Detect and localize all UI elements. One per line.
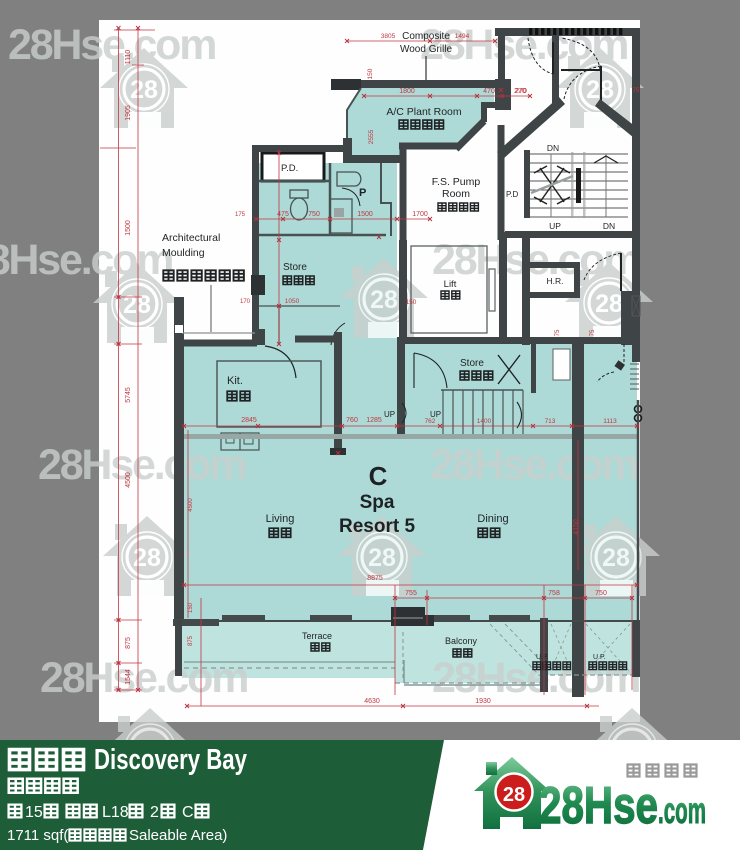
svg-text:750: 750: [308, 211, 320, 218]
svg-text:875: 875: [188, 635, 194, 646]
svg-text:Saleable Area): Saleable Area): [129, 827, 227, 844]
svg-text:760: 760: [346, 417, 358, 424]
svg-text:P.D: P.D: [506, 190, 519, 199]
svg-text:1800: 1800: [399, 88, 415, 95]
svg-text:Store: Store: [460, 358, 484, 369]
svg-text:28Hse.com: 28Hse.com: [40, 654, 247, 702]
svg-text:UP: UP: [549, 221, 561, 231]
svg-text:Wood Grille: Wood Grille: [400, 44, 452, 55]
svg-text:P.D.: P.D.: [281, 163, 298, 174]
svg-text:C: C: [369, 461, 388, 491]
svg-text:28Hse: 28Hse: [539, 777, 658, 835]
svg-text:75: 75: [633, 88, 640, 94]
svg-text:Spa: Spa: [360, 492, 395, 513]
svg-text:875: 875: [125, 637, 132, 649]
svg-text:150: 150: [188, 602, 194, 613]
svg-text:H.R.: H.R.: [547, 276, 564, 286]
svg-text:Balcony: Balcony: [445, 636, 478, 646]
svg-text:75: 75: [590, 329, 596, 336]
svg-text:2: 2: [150, 804, 159, 821]
svg-text:2845: 2845: [241, 417, 257, 424]
svg-text:762: 762: [425, 418, 436, 425]
svg-text:F.S. Pump: F.S. Pump: [432, 176, 481, 188]
svg-text:28Hse.com: 28Hse.com: [432, 654, 639, 702]
svg-text:1494: 1494: [455, 33, 470, 40]
svg-text:.com: .com: [658, 790, 706, 831]
svg-text:75: 75: [555, 329, 561, 336]
svg-text:1500: 1500: [125, 220, 132, 236]
svg-text:U.P.: U.P.: [593, 654, 606, 661]
svg-text:A/C Plant Room: A/C Plant Room: [386, 106, 462, 118]
svg-text:4150: 4150: [573, 519, 580, 535]
svg-text:DN: DN: [547, 143, 559, 153]
svg-text:1400: 1400: [477, 418, 492, 425]
svg-text:Discovery Bay: Discovery Bay: [94, 744, 247, 776]
svg-text:1050: 1050: [285, 298, 300, 305]
svg-text:P: P: [359, 187, 366, 199]
svg-text:755: 755: [405, 590, 417, 597]
svg-text:4500: 4500: [188, 498, 194, 512]
svg-text:1905: 1905: [125, 105, 132, 121]
svg-text:L18: L18: [102, 804, 129, 821]
svg-text:Room: Room: [442, 188, 470, 200]
svg-text:1711 sqf(: 1711 sqf(: [7, 827, 68, 844]
svg-text:1700: 1700: [412, 211, 428, 218]
svg-text:Living: Living: [266, 513, 295, 525]
svg-text:150: 150: [406, 299, 417, 306]
svg-text:750: 750: [595, 590, 607, 597]
svg-text:5745: 5745: [125, 387, 132, 403]
svg-text:Composite: Composite: [402, 31, 450, 42]
svg-text:1930: 1930: [475, 698, 491, 705]
svg-text:Terrace: Terrace: [302, 631, 332, 641]
svg-text:4500: 4500: [125, 472, 132, 488]
svg-text:15: 15: [25, 804, 43, 821]
svg-text:1544: 1544: [125, 669, 132, 685]
svg-text:Moulding: Moulding: [162, 247, 205, 259]
svg-text:475: 475: [277, 211, 289, 218]
svg-text:713: 713: [545, 418, 556, 425]
svg-text:170: 170: [240, 299, 251, 305]
svg-text:Dining: Dining: [477, 513, 508, 525]
svg-text:175: 175: [235, 212, 246, 218]
svg-text:C: C: [182, 804, 194, 821]
svg-text:U.P.: U.P.: [536, 654, 549, 661]
svg-text:28: 28: [503, 784, 525, 806]
svg-text:28Hse.com: 28Hse.com: [38, 441, 245, 489]
svg-text:150: 150: [367, 68, 374, 79]
svg-text:28Hse.com: 28Hse.com: [8, 21, 215, 69]
svg-text:270: 270: [514, 88, 526, 95]
svg-text:1110: 1110: [125, 50, 132, 65]
svg-text:Store: Store: [283, 262, 307, 273]
svg-text:8875: 8875: [367, 575, 383, 582]
svg-text:470: 470: [483, 88, 495, 95]
svg-text:4630: 4630: [364, 698, 380, 705]
svg-text:28Hse.com: 28Hse.com: [430, 441, 637, 489]
svg-text:Kit.: Kit.: [227, 375, 243, 387]
svg-text:1500: 1500: [357, 211, 373, 218]
svg-text:758: 758: [548, 590, 560, 597]
svg-text:Lift: Lift: [444, 279, 457, 290]
svg-text:1285: 1285: [366, 417, 382, 424]
svg-text:UP: UP: [384, 410, 395, 419]
svg-text:DN: DN: [603, 221, 615, 231]
svg-text:3805: 3805: [381, 33, 396, 40]
svg-text:2555: 2555: [368, 129, 375, 144]
svg-text:1113: 1113: [603, 418, 617, 425]
svg-text:Architectural: Architectural: [162, 232, 220, 244]
svg-text:Resort 5: Resort 5: [339, 516, 415, 537]
